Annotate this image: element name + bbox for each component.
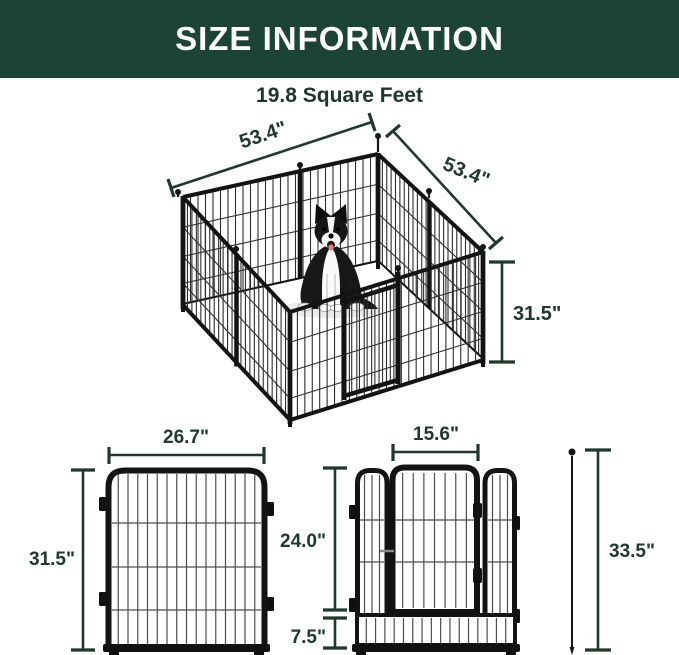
- door-hinge: [473, 568, 482, 583]
- panel-foot: [356, 651, 366, 655]
- post-finial: [297, 162, 303, 168]
- dimension-bottom-strip-height: 7.5": [291, 618, 347, 648]
- dimension-door-width: 15.6": [393, 424, 478, 461]
- panel-foot: [254, 651, 264, 655]
- dog-tongue: [328, 245, 333, 251]
- dimension-front-panel-width: 26.7": [109, 427, 264, 464]
- dimension-pen-width-left: 53.4": [168, 113, 375, 197]
- dog-eye: [336, 227, 340, 231]
- dim-label-door-width: 15.6": [413, 424, 459, 445]
- door-panel-bottom-strip: [357, 615, 515, 645]
- connector-tab: [349, 505, 356, 519]
- dim-label-front-width: 26.7": [163, 427, 209, 448]
- connector-tab: [513, 609, 520, 623]
- dimension-total-height: 33.5": [585, 450, 655, 650]
- dim-label-bottom-strip: 7.5": [291, 627, 326, 648]
- panel-foot: [109, 651, 119, 655]
- ground-stake: [569, 449, 576, 655]
- panel-foot: [506, 651, 516, 655]
- stake-tip: [570, 647, 575, 655]
- dim-label-total-height: 33.5": [609, 541, 655, 562]
- dimension-pen-width-right: 53.4": [386, 125, 503, 249]
- post-finial: [375, 133, 381, 139]
- connector-tab: [349, 598, 356, 612]
- connector-tab: [267, 502, 274, 516]
- dim-label-pen-width-left: 53.4": [237, 117, 290, 153]
- dimension-front-panel-height: 31.5": [29, 470, 95, 650]
- dimension-pen-height: 31.5": [489, 262, 561, 362]
- connector-tab: [267, 597, 274, 611]
- post-finial: [426, 188, 432, 194]
- panel-front-diagram: [99, 471, 274, 655]
- post-finial: [175, 189, 181, 195]
- post-finial: [395, 265, 401, 271]
- stake-ball: [569, 449, 576, 456]
- connector-tab: [99, 592, 106, 606]
- dim-label-pen-width-right: 53.4": [440, 153, 493, 192]
- size-diagram: 53.4" 53.4" 31.5": [0, 0, 679, 655]
- door-panel-base: [352, 644, 520, 652]
- dim-label-front-height: 31.5": [29, 549, 75, 570]
- connector-tab: [99, 497, 106, 511]
- size-information-page: SIZE INFORMATION 19.8 Square Feet: [0, 0, 679, 655]
- dimension-door-height: 24.0": [280, 468, 347, 610]
- dim-label-pen-height: 31.5": [513, 303, 561, 325]
- connector-tab: [513, 516, 520, 530]
- dog-nose: [328, 233, 333, 238]
- post-finial: [480, 244, 486, 250]
- door-hinge: [473, 503, 482, 518]
- post-finial: [233, 246, 239, 252]
- dim-label-door-height: 24.0": [280, 531, 326, 552]
- panel-front-base: [103, 644, 270, 652]
- panel-door-diagram: [349, 468, 520, 655]
- post-finial: [341, 281, 347, 287]
- dog-front-paw: [319, 305, 332, 312]
- dog-eye: [322, 227, 326, 231]
- pen-3d-illustration: [175, 133, 486, 427]
